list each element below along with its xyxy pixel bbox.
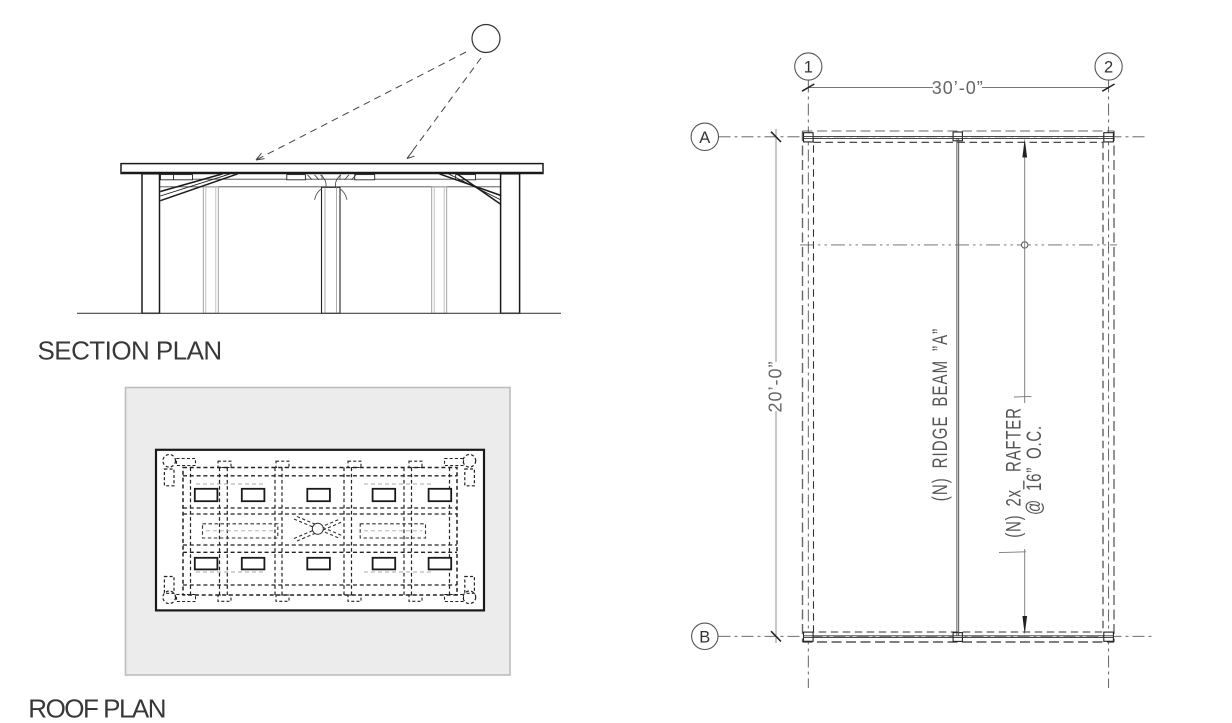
svg-text:A: A (699, 129, 710, 147)
svg-text:20’-0”: 20’-0” (766, 360, 786, 412)
svg-text:2: 2 (1104, 59, 1113, 77)
svg-text:(N) RIDGE BEAM ”A”: (N) RIDGE BEAM ”A” (927, 328, 951, 502)
svg-text:B: B (699, 628, 710, 646)
svg-text:SECTION PLAN: SECTION PLAN (38, 336, 222, 366)
svg-text:30’-0”: 30’-0” (932, 78, 984, 98)
svg-text:1: 1 (804, 59, 813, 77)
svg-text:@ 16” O.C.: @ 16” O.C. (1021, 425, 1045, 515)
svg-text:ROOF PLAN: ROOF PLAN (28, 694, 165, 723)
